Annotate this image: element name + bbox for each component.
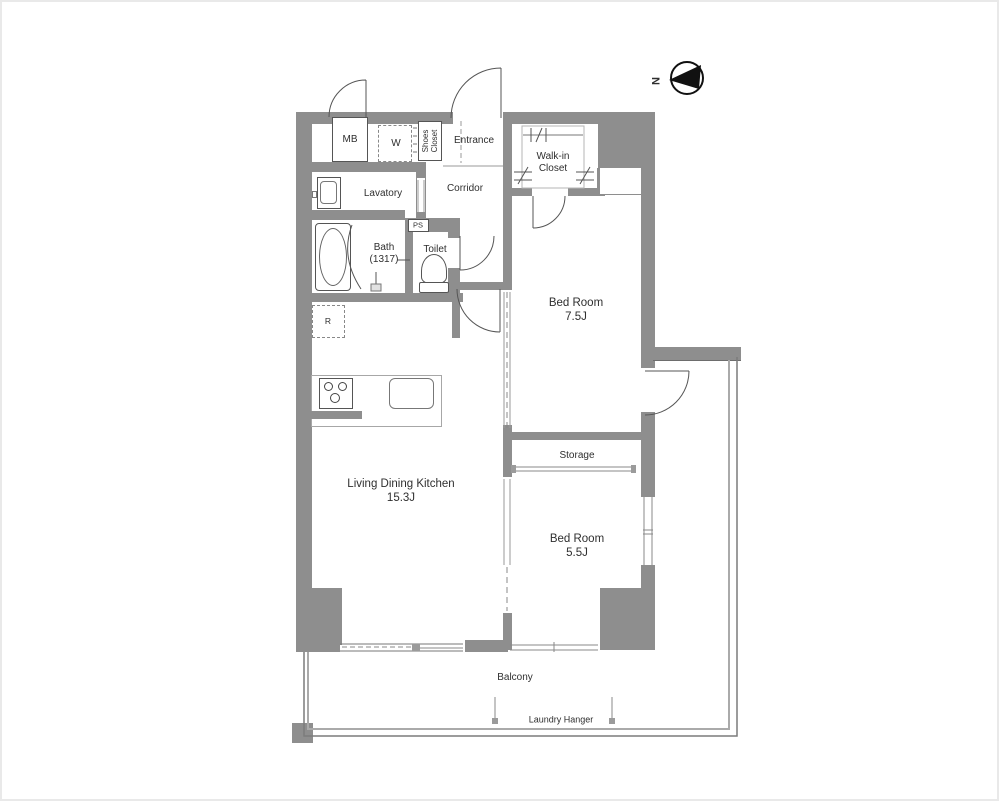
room-label-bedroom1: Bed Room 7.5J bbox=[549, 297, 603, 325]
room-label-ps: PS bbox=[413, 221, 423, 230]
balcony-top-wall bbox=[653, 347, 741, 361]
ldk-balcony-window bbox=[340, 644, 463, 651]
bathtub-inner bbox=[319, 228, 347, 286]
wall-segment bbox=[296, 640, 340, 652]
wall-segment bbox=[503, 432, 655, 440]
toilet-door-arc bbox=[460, 236, 494, 270]
ldk-door-arc bbox=[457, 289, 500, 332]
bedroom1-sliding-partition bbox=[504, 292, 510, 428]
shoes-closet-ticks bbox=[413, 128, 417, 152]
laundry-hanger-base bbox=[609, 718, 615, 724]
bedroom2-sliding-door-cut bbox=[503, 477, 512, 613]
wall-segment bbox=[465, 640, 508, 652]
bath-size: (1317) bbox=[370, 254, 399, 266]
room-label-corridor: Corridor bbox=[447, 183, 483, 195]
stove-burner bbox=[324, 382, 333, 391]
wall-notch bbox=[600, 168, 641, 195]
refrigerator-label: R bbox=[325, 316, 331, 326]
compass-needle bbox=[669, 65, 701, 89]
walk-in-closet-bracket-right bbox=[576, 167, 594, 184]
laundry-hanger-base bbox=[492, 718, 498, 724]
storage-pole bbox=[516, 467, 632, 471]
kitchen-sink bbox=[389, 378, 434, 409]
lavatory-sink-knob bbox=[312, 191, 317, 198]
compass bbox=[669, 62, 703, 94]
room-label-mb: MB bbox=[343, 134, 358, 146]
wall-segment bbox=[448, 232, 460, 238]
storage-pole-cap bbox=[631, 465, 636, 473]
kitchen-stub-wall bbox=[309, 411, 362, 419]
compass-circle bbox=[671, 62, 703, 94]
wall-segment bbox=[508, 188, 532, 196]
bedroom1-size: 7.5J bbox=[549, 311, 603, 325]
wall-segment bbox=[296, 112, 312, 590]
walk-in-closet-door-arc bbox=[533, 196, 565, 228]
room-label-bath: Bath (1317) bbox=[370, 242, 399, 266]
walk-in-closet-hanger-mark bbox=[531, 128, 546, 142]
toilet-base bbox=[419, 282, 449, 293]
wall-segment bbox=[452, 290, 460, 338]
laundry-hanger-label: Laundry Hanger bbox=[529, 715, 594, 726]
wall-segment bbox=[600, 588, 655, 650]
balcony-label: Balcony bbox=[497, 672, 533, 684]
bath-name: Bath bbox=[370, 242, 399, 254]
entrance-door-arc bbox=[451, 68, 501, 118]
wall-segment bbox=[296, 293, 413, 302]
ldk-name: Living Dining Kitchen bbox=[347, 478, 454, 492]
wall-segment bbox=[405, 232, 413, 293]
room-label-toilet: Toilet bbox=[423, 244, 446, 256]
wall-segment bbox=[458, 282, 503, 290]
room-label-washer: W bbox=[391, 138, 400, 150]
room-label-ldk: Living Dining Kitchen 15.3J bbox=[347, 478, 454, 506]
wall-segment bbox=[641, 124, 655, 368]
ldk-size: 15.3J bbox=[347, 492, 454, 506]
wall-segment bbox=[503, 112, 512, 290]
compass-north-label: N bbox=[650, 77, 663, 85]
bedroom2-bottom-window bbox=[510, 642, 598, 652]
room-label-storage: Storage bbox=[559, 450, 594, 462]
wall-segment bbox=[312, 162, 416, 172]
wall-segment bbox=[296, 588, 342, 645]
stove-burner bbox=[330, 393, 340, 403]
stove-burner bbox=[338, 382, 347, 391]
bedroom2-size: 5.5J bbox=[550, 547, 604, 561]
balcony-corner-block bbox=[292, 723, 313, 743]
room-label-lavatory: Lavatory bbox=[364, 188, 402, 200]
room-label-walk-in-closet: Walk-in Closet bbox=[528, 151, 578, 175]
balcony-door-arc bbox=[645, 371, 689, 415]
ldk-window-handle bbox=[412, 644, 420, 651]
wall-segment bbox=[296, 210, 405, 220]
floor-plan: MB W Shoes Closet Entrance Walk-in Close… bbox=[0, 0, 999, 801]
toilet-bowl bbox=[421, 254, 447, 284]
bedroom1-name: Bed Room bbox=[549, 297, 603, 311]
room-label-bedroom2: Bed Room 5.5J bbox=[550, 533, 604, 561]
room-label-shoes-closet: Shoes Closet bbox=[421, 121, 439, 161]
bedroom2-right-window bbox=[643, 497, 653, 565]
lavatory-sink-basin bbox=[320, 181, 337, 204]
bedroom2-name: Bed Room bbox=[550, 533, 604, 547]
lavatory-sliding-door-cut bbox=[417, 178, 425, 212]
wall-segment bbox=[641, 440, 655, 497]
shower-base bbox=[371, 284, 381, 291]
wall-segment bbox=[641, 565, 655, 588]
room-label-entrance: Entrance bbox=[454, 135, 494, 147]
